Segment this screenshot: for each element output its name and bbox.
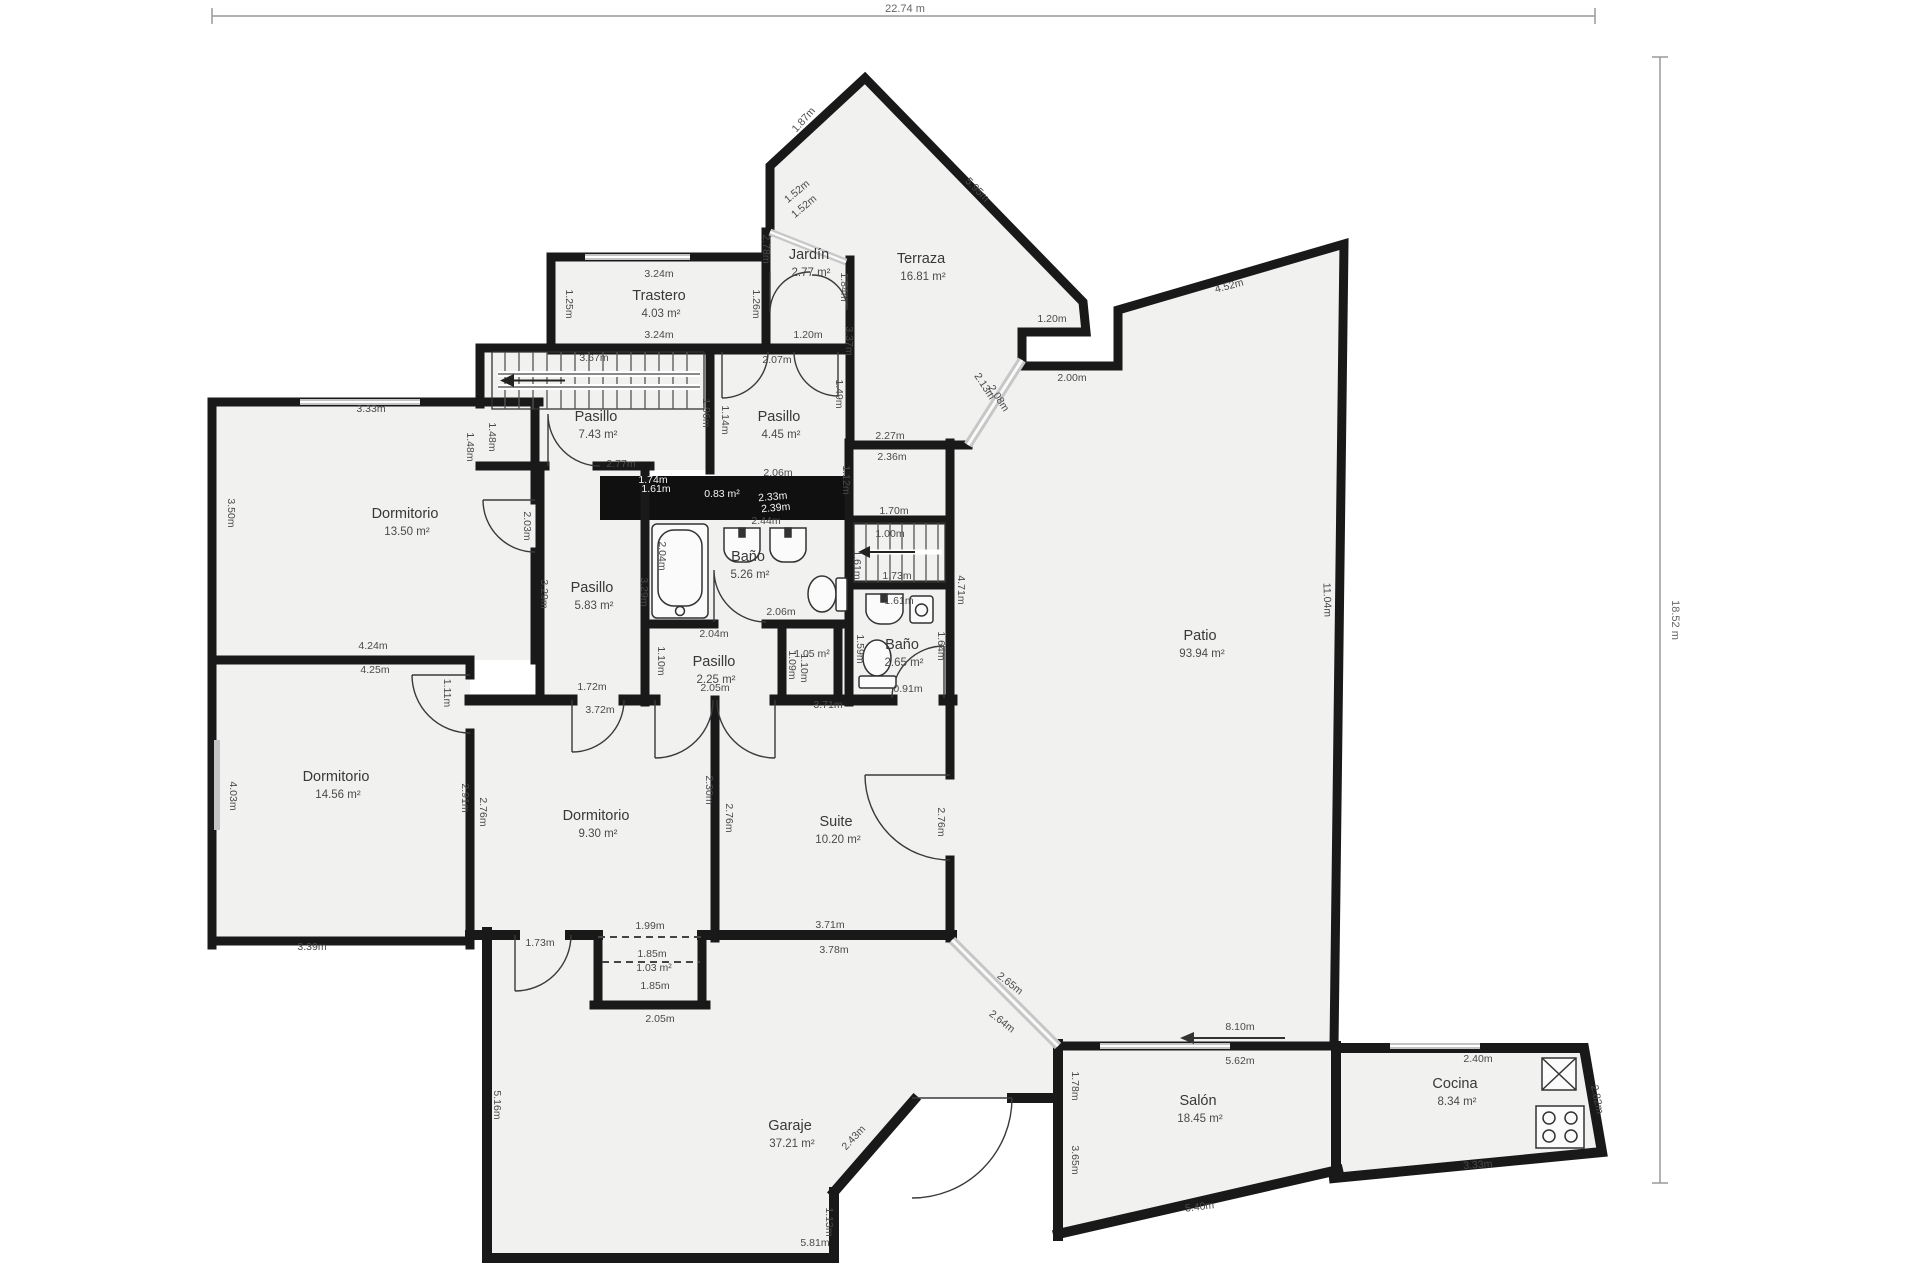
door-garage-side <box>912 1098 1012 1198</box>
dimension-label: 4.71m <box>955 575 967 604</box>
dimension-label: 1.64m <box>935 631 947 660</box>
dimension-label: 2.03m <box>521 511 533 540</box>
room-area-label: 5.83 m² <box>575 600 614 612</box>
room-label: Patio <box>1183 628 1216 644</box>
room-area-label: 4.45 m² <box>762 429 801 441</box>
room-label: Garaje <box>768 1118 812 1134</box>
dimension-label: 3.39m <box>297 941 326 953</box>
fridge-icon <box>1542 1058 1576 1090</box>
dimension-label: 3.71m <box>813 699 842 711</box>
dimension-label: 1.00m <box>875 528 904 540</box>
room-label: Terraza <box>897 251 946 267</box>
room-area-label: 93.94 m² <box>1179 648 1225 660</box>
dimension-label: 0.83 m² <box>704 488 740 500</box>
dimension-label: 8.10m <box>1225 1021 1254 1033</box>
dimension-label: 1.10m <box>798 653 810 682</box>
floor-plan-page: 22.74 m 18.52 m Trastero4.03 m²Jardín2.7… <box>0 0 1920 1280</box>
dimension-label: 2.91m <box>459 783 471 812</box>
dimension-label: 1.49m <box>833 379 845 408</box>
dimension-label: 3.33m <box>356 403 385 415</box>
dimension-label: 3.71m <box>815 919 844 931</box>
dimension-label: 1.78m <box>1069 1071 1081 1100</box>
dimension-label: 0.91m <box>893 683 922 695</box>
dimension-label: 1.99m <box>635 920 664 932</box>
room-label: Salón <box>1179 1093 1216 1109</box>
dimension-label: 3.33m <box>1463 1158 1493 1172</box>
dimension-label: 2.76m <box>935 807 947 836</box>
room-label: Pasillo <box>693 654 736 670</box>
top-ruler-label: 22.74 m <box>885 3 925 15</box>
floor-garaje <box>483 932 1058 1262</box>
dimension-label: 1.48m <box>486 422 498 451</box>
dimension-label: 1.09m <box>786 650 798 679</box>
dimension-label: 1.73m <box>882 570 911 582</box>
dimension-label: 5.16m <box>491 1090 503 1119</box>
room-area-label: 18.45 m² <box>1177 1113 1223 1125</box>
dimension-label: 3.65m <box>1069 1145 1081 1174</box>
dimension-label: 2.40m <box>1463 1053 1492 1065</box>
dimension-label: 2.04m <box>656 541 668 570</box>
room-area-label: 8.34 m² <box>1438 1096 1477 1108</box>
dimension-label: 1.20m <box>793 329 822 341</box>
room-area-label: 2.77 m² <box>792 267 831 279</box>
dimension-label: 2.04m <box>699 628 728 640</box>
dimension-label: 3.72m <box>585 704 614 716</box>
dimension-label: 5.62m <box>1225 1055 1254 1067</box>
room-area-label: 10.20 m² <box>815 834 861 846</box>
room-label: Suite <box>819 814 852 830</box>
dimension-label: 1.96m <box>700 398 712 427</box>
dimension-label: 2.00m <box>1057 372 1086 384</box>
room-area-label: 2.65 m² <box>885 657 924 669</box>
room-area-label: 7.43 m² <box>579 429 618 441</box>
room-label: Baño <box>885 637 919 653</box>
bathtub-icon <box>652 524 708 618</box>
dimension-label: 2.05m <box>645 1013 674 1025</box>
dimension-label: 2.06m <box>763 467 792 479</box>
dimension-label: 3.67m <box>579 352 608 364</box>
room-label: Trastero <box>632 288 685 304</box>
dimension-label: 1.85m <box>637 948 666 960</box>
dimension-label: 2.77m <box>606 458 635 470</box>
room-area-label: 14.56 m² <box>315 789 361 801</box>
dimension-label: 1.03 m² <box>636 962 672 974</box>
toilet-icon <box>808 576 847 612</box>
room-area-label: 4.03 m² <box>642 308 681 320</box>
dimension-label: 1.85m <box>640 980 669 992</box>
dimension-label: 3.29m <box>638 577 650 606</box>
dimension-label: 1.70m <box>879 505 908 517</box>
dimension-label: 4.25m <box>360 664 389 676</box>
room-area-label: 5.26 m² <box>731 569 770 581</box>
dimension-label: 1.20m <box>1037 313 1066 325</box>
room-label: Dormitorio <box>303 769 370 785</box>
room-label: Pasillo <box>575 409 618 425</box>
dimension-label: 1.12m <box>840 465 852 494</box>
room-label: Jardín <box>789 247 829 263</box>
floor-plan-canvas: 22.74 m 18.52 m Trastero4.03 m²Jardín2.7… <box>0 0 1920 1280</box>
dimension-label: 3.37m <box>843 326 855 355</box>
dimension-label: 1.11m <box>441 679 453 708</box>
right-ruler-label: 18.52 m <box>1669 600 1681 640</box>
dimension-label: 2.39m <box>761 501 791 516</box>
room-label: Baño <box>731 549 765 565</box>
dimension-label: 2.44m <box>751 515 780 527</box>
room-area-label: 13.50 m² <box>384 526 430 538</box>
dimension-label: 5.40m <box>1184 1199 1215 1214</box>
room-label: Cocina <box>1432 1076 1478 1092</box>
dimension-label: 5.81m <box>800 1237 829 1249</box>
right-ruler-line <box>1652 57 1668 1183</box>
stove-icon <box>1536 1106 1584 1148</box>
room-area-label: 9.30 m² <box>579 828 618 840</box>
room-label: Dormitorio <box>372 506 439 522</box>
dimension-label: 3.29m <box>538 579 550 608</box>
dimension-label: 2.76m <box>477 797 489 826</box>
room-area-label: 16.81 m² <box>900 271 946 283</box>
dimension-label: 1.59m <box>854 634 866 663</box>
dimension-label: 2.76m <box>723 803 735 832</box>
dimension-label: 1.48m <box>464 432 476 461</box>
dimension-label: 1.72m <box>577 681 606 693</box>
dimension-label: 1.10m <box>655 646 667 675</box>
sink-icon <box>770 528 806 562</box>
room-label: Pasillo <box>758 409 801 425</box>
dimension-label: 2.06m <box>766 606 795 618</box>
dimension-label: 1.26m <box>750 289 762 318</box>
dimension-label: 2.27m <box>875 430 904 442</box>
room-label: Dormitorio <box>563 808 630 824</box>
dimension-label: 1.61m <box>884 595 913 607</box>
dimension-label: 2.07m <box>762 354 791 366</box>
dimension-label: 1.14m <box>719 405 731 434</box>
dimension-label: 4.03m <box>227 781 239 810</box>
dimension-label: 3.50m <box>225 498 237 527</box>
dimension-label: 3.24m <box>644 329 673 341</box>
dimension-label: 2.30m <box>703 775 715 804</box>
dimension-label: 1.25m <box>563 289 575 318</box>
room-label: Pasillo <box>571 580 614 596</box>
dimension-label: 3.78m <box>819 944 848 956</box>
dimension-label: 11.04m <box>1320 583 1333 618</box>
dimension-label: 2.05m <box>700 682 729 694</box>
dimension-label: 3.24m <box>644 268 673 280</box>
dimension-label: 1.73m <box>525 937 554 949</box>
dimension-label: 1.61m <box>851 550 863 579</box>
dimension-label: 4.24m <box>358 640 387 652</box>
dimension-label: 1.61m <box>641 483 670 495</box>
room-area-label: 37.21 m² <box>769 1138 815 1150</box>
dimension-label: 2.36m <box>877 451 906 463</box>
dimension-label: 1.84m <box>838 272 850 301</box>
dimension-label: 1.13m <box>823 1207 835 1236</box>
dimension-label: 2.78m <box>760 234 772 263</box>
